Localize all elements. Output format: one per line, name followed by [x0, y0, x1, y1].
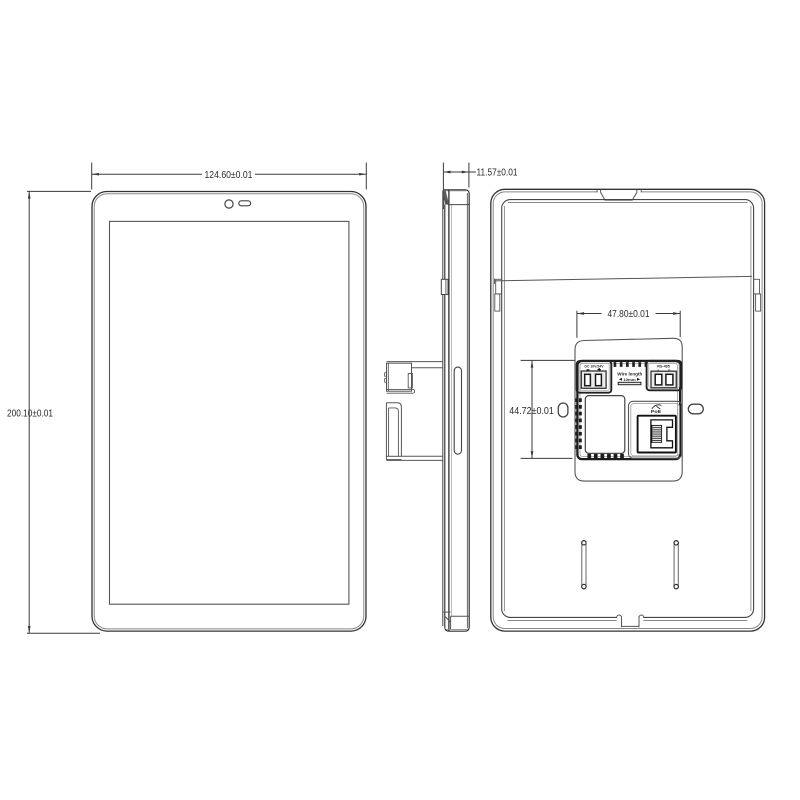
svg-text:PoE: PoE [651, 409, 662, 414]
svg-text:124.60±0.01: 124.60±0.01 [205, 170, 253, 181]
svg-text:200.10±0.01: 200.10±0.01 [7, 409, 53, 420]
svg-text:RS-485: RS-485 [657, 365, 670, 369]
svg-text:DC 10V/24V: DC 10V/24V [585, 364, 605, 368]
svg-text:11.57±0.01: 11.57±0.01 [477, 168, 518, 179]
svg-text:Wire length: Wire length [617, 371, 642, 376]
svg-text:47.80±0.01: 47.80±0.01 [608, 309, 650, 320]
svg-text:10mm: 10mm [623, 377, 636, 382]
svg-text:44.72±0.01: 44.72±0.01 [509, 406, 554, 417]
